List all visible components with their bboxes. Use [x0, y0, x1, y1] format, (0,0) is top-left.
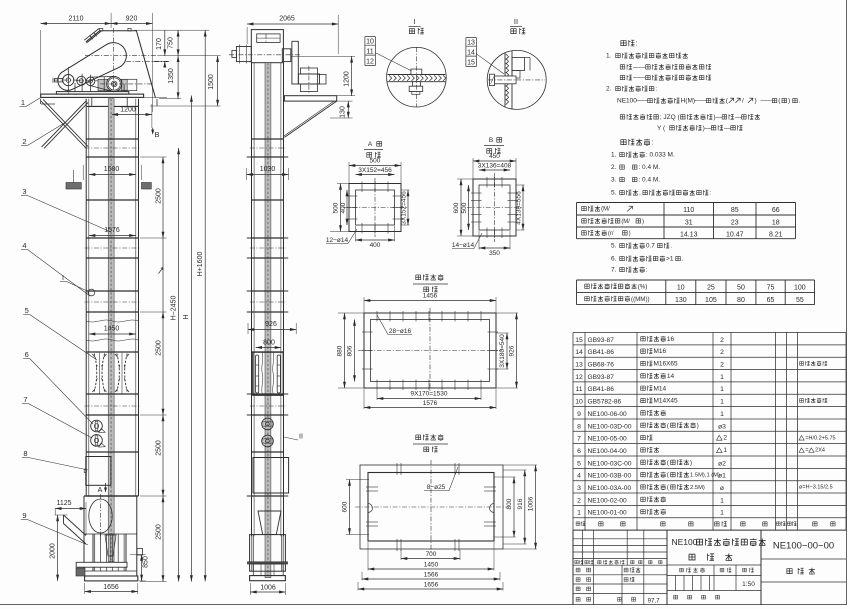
svg-text:(r/: (r/	[608, 231, 614, 237]
svg-text:ø=H−3.15/2.5: ø=H−3.15/2.5	[799, 485, 833, 491]
svg-text:130: 130	[675, 297, 687, 304]
svg-text:7.: 7.	[611, 267, 617, 274]
svg-text:28−ø16: 28−ø16	[389, 328, 412, 335]
svg-text:NE100-03D-00: NE100-03D-00	[588, 423, 632, 430]
svg-text:800: 800	[263, 340, 275, 347]
svg-text:GB68-76: GB68-76	[588, 362, 615, 369]
svg-text:7: 7	[577, 436, 581, 443]
svg-text:65: 65	[767, 297, 775, 304]
svg-text:2500: 2500	[155, 524, 162, 540]
svg-text:): )	[788, 98, 790, 105]
svg-text:75: 75	[767, 285, 775, 292]
svg-text:>1: >1	[666, 256, 674, 263]
svg-text:10: 10	[575, 399, 583, 406]
svg-text:2: 2	[577, 497, 581, 504]
svg-text:H−2450: H−2450	[170, 296, 177, 321]
svg-text:—: —	[735, 114, 742, 121]
svg-text:2: 2	[720, 349, 724, 356]
svg-text:1:50: 1:50	[742, 581, 755, 588]
svg-text:NE100-03B-00: NE100-03B-00	[588, 473, 632, 480]
svg-text:14: 14	[667, 373, 675, 380]
svg-text:750: 750	[168, 37, 175, 49]
svg-text:ø3: ø3	[718, 423, 726, 430]
svg-text:920: 920	[126, 16, 138, 23]
svg-text:(: (	[726, 98, 729, 105]
svg-text:1566: 1566	[424, 571, 439, 578]
svg-text:: 0.033 M.: : 0.033 M.	[646, 152, 675, 159]
svg-text:9: 9	[22, 511, 26, 520]
svg-text:23: 23	[731, 219, 739, 226]
svg-text:): )	[690, 460, 692, 466]
svg-text:50: 50	[737, 285, 745, 292]
svg-text:1656: 1656	[424, 581, 439, 588]
svg-text:3X180=540: 3X180=540	[499, 334, 506, 368]
svg-text:NE100: NE100	[617, 98, 637, 105]
svg-text:3: 3	[22, 187, 26, 196]
svg-text:2X4: 2X4	[815, 448, 825, 454]
svg-text:): )	[629, 231, 631, 237]
svg-text:2: 2	[723, 435, 727, 442]
svg-text:110: 110	[683, 207, 694, 214]
svg-text:7: 7	[23, 395, 27, 404]
svg-text:NE100−00−00: NE100−00−00	[773, 541, 834, 552]
svg-text:1006: 1006	[260, 585, 276, 592]
svg-text:4: 4	[22, 241, 26, 250]
svg-text:1200: 1200	[344, 71, 351, 87]
svg-text:A: A	[98, 487, 103, 494]
svg-text:500: 500	[461, 202, 468, 213]
svg-text:500: 500	[370, 158, 381, 165]
svg-text:; JZQ (: ; JZQ (	[660, 114, 681, 121]
svg-text:1: 1	[723, 447, 727, 454]
svg-text:11: 11	[575, 386, 582, 393]
svg-text:A: A	[368, 141, 373, 148]
svg-text:GB41-86: GB41-86	[588, 386, 615, 393]
svg-text:——: ——	[633, 76, 645, 82]
svg-text:1576: 1576	[423, 400, 438, 407]
svg-text:M16: M16	[653, 348, 666, 355]
svg-text:2.5M): 2.5M)	[690, 485, 705, 491]
svg-text:1: 1	[720, 374, 724, 381]
svg-text:130: 130	[340, 106, 347, 118]
svg-text:2: 2	[720, 337, 724, 344]
svg-text:5: 5	[577, 460, 581, 467]
svg-text:I: I	[62, 275, 64, 282]
svg-text:(: (	[667, 485, 669, 491]
svg-text:): )	[755, 98, 757, 105]
svg-text:1: 1	[21, 98, 25, 107]
svg-text:1125: 1125	[56, 500, 71, 507]
svg-text:——: ——	[633, 65, 645, 71]
svg-text:1576: 1576	[104, 227, 120, 234]
svg-text:100: 100	[794, 285, 806, 292]
svg-text:5.: 5.	[611, 243, 617, 250]
svg-text:18: 18	[772, 219, 780, 226]
svg-text:600: 600	[342, 501, 349, 512]
svg-text:85: 85	[731, 207, 739, 214]
svg-text:(: (	[667, 473, 669, 479]
svg-text:6.: 6.	[611, 256, 617, 263]
svg-text:B: B	[489, 137, 493, 144]
svg-text:=H/0.2+5.75: =H/0.2+5.75	[805, 435, 835, 441]
svg-text:2000: 2000	[49, 543, 56, 559]
svg-text:1: 1	[720, 386, 724, 393]
svg-text:——: ——	[695, 99, 707, 105]
svg-text:——: ——	[636, 99, 648, 105]
svg-text:1500: 1500	[208, 74, 215, 90]
svg-text:8.21: 8.21	[769, 231, 783, 238]
svg-text:I: I	[413, 17, 415, 26]
svg-text:H: H	[183, 314, 190, 319]
svg-text:/: /	[742, 98, 744, 105]
svg-text:13: 13	[467, 40, 475, 47]
svg-text:M14X45: M14X45	[653, 398, 678, 405]
svg-text:ø1: ø1	[718, 473, 726, 480]
svg-text:3: 3	[577, 485, 581, 492]
svg-text:10: 10	[677, 285, 685, 292]
svg-text::: :	[636, 41, 638, 48]
svg-text:NE100-03A-00: NE100-03A-00	[588, 485, 632, 492]
svg-text:((MM)): ((MM))	[631, 296, 650, 303]
svg-text:1030: 1030	[260, 166, 276, 173]
svg-text::: :	[651, 140, 653, 147]
svg-text:800: 800	[506, 498, 513, 509]
svg-text:GB41-86: GB41-86	[588, 349, 615, 356]
svg-text:1.5M),1 (M): 1.5M),1 (M)	[690, 473, 720, 479]
svg-text:8: 8	[23, 449, 27, 458]
svg-text:6: 6	[25, 350, 29, 359]
svg-text:—: —	[724, 125, 731, 132]
svg-text:3X152=456: 3X152=456	[358, 167, 392, 174]
svg-text:5: 5	[25, 306, 29, 315]
svg-text:GB93-87: GB93-87	[588, 337, 615, 344]
svg-text:,: ,	[639, 191, 641, 197]
svg-text:450: 450	[489, 153, 500, 160]
svg-text:880: 880	[337, 345, 344, 356]
svg-text:600: 600	[453, 202, 460, 213]
svg-text:Y (: Y (	[657, 125, 666, 132]
svg-text:400: 400	[340, 202, 347, 213]
svg-text:1: 1	[577, 510, 581, 517]
svg-text:10: 10	[366, 39, 374, 46]
svg-text:13: 13	[575, 362, 583, 369]
svg-text:806: 806	[347, 345, 354, 356]
svg-text:)—: )—	[713, 114, 722, 121]
svg-text:15: 15	[467, 59, 475, 66]
svg-text:NE100-01-00: NE100-01-00	[588, 510, 628, 517]
svg-text:14.13: 14.13	[680, 231, 698, 238]
svg-text:NE100-05-00: NE100-05-00	[588, 436, 628, 443]
svg-text:II: II	[514, 17, 518, 26]
svg-text:15: 15	[575, 337, 583, 344]
svg-text:3X152=456: 3X152=456	[400, 191, 407, 225]
svg-text:(: (	[667, 423, 669, 429]
svg-text:1006: 1006	[528, 496, 535, 511]
svg-text:9: 9	[577, 411, 581, 418]
svg-text:10.47: 10.47	[726, 231, 744, 238]
svg-text:2110: 2110	[68, 16, 83, 23]
svg-text:(M/: (M/	[621, 219, 630, 225]
svg-text::: :	[655, 87, 657, 93]
svg-text:1450: 1450	[104, 326, 120, 333]
svg-text:GB5782-86: GB5782-86	[588, 399, 622, 406]
svg-text:14−ø14: 14−ø14	[452, 242, 475, 249]
svg-text:1: 1	[720, 510, 724, 517]
svg-text:1200: 1200	[120, 107, 136, 114]
svg-text:1: 1	[720, 399, 724, 406]
svg-text:350: 350	[489, 250, 500, 257]
svg-text:II: II	[299, 434, 303, 441]
svg-text:9X170=1530: 9X170=1530	[410, 391, 447, 398]
svg-text:2500: 2500	[155, 188, 162, 204]
svg-text:: 0.4 M.: : 0.4 M.	[638, 177, 660, 184]
svg-text:3X136=408: 3X136=408	[478, 163, 512, 170]
svg-text:1450: 1450	[424, 561, 439, 568]
svg-text:1: 1	[720, 497, 724, 504]
svg-text:2: 2	[22, 137, 26, 146]
svg-text:.: .	[670, 244, 672, 250]
svg-text:14: 14	[575, 349, 583, 356]
svg-text:NE100-04-00: NE100-04-00	[588, 448, 628, 455]
svg-text:926: 926	[509, 345, 516, 356]
svg-text:1.: 1.	[611, 152, 617, 159]
svg-text:400: 400	[370, 242, 381, 249]
svg-text:): )	[697, 423, 699, 429]
svg-text:1350: 1350	[168, 68, 175, 84]
svg-text:14: 14	[467, 49, 475, 56]
svg-text:(: (	[667, 460, 669, 466]
svg-text:2: 2	[720, 362, 724, 369]
svg-text:H+1600: H+1600	[197, 252, 204, 277]
svg-text:.: .	[682, 257, 684, 263]
svg-text::: :	[709, 191, 711, 197]
svg-text:3.: 3.	[611, 177, 617, 184]
svg-text:55: 55	[796, 297, 804, 304]
svg-text:GB93-87: GB93-87	[588, 374, 615, 381]
svg-text:M14: M14	[653, 385, 666, 392]
svg-text:12: 12	[366, 58, 374, 65]
svg-text:4: 4	[577, 473, 581, 480]
svg-text:0.7: 0.7	[646, 243, 655, 250]
svg-text:ø: ø	[720, 485, 724, 492]
svg-text:700: 700	[426, 551, 437, 558]
svg-text:NE100-03C-00: NE100-03C-00	[588, 460, 632, 467]
svg-text:——: ——	[761, 99, 773, 105]
svg-text:12: 12	[575, 374, 583, 381]
svg-text:4X139=556: 4X139=556	[515, 191, 522, 225]
svg-text:1.: 1.	[606, 53, 612, 60]
svg-text:500: 500	[333, 202, 340, 213]
svg-text:105: 105	[705, 297, 717, 304]
svg-text:(M/: (M/	[601, 207, 610, 213]
svg-text:): )	[642, 219, 644, 225]
svg-text:2.: 2.	[611, 164, 617, 171]
svg-text:850: 850	[143, 556, 150, 568]
svg-text:6: 6	[577, 448, 581, 455]
svg-text:2065: 2065	[279, 16, 295, 23]
svg-text:926: 926	[265, 321, 277, 328]
svg-text:66: 66	[772, 207, 780, 214]
svg-text:8: 8	[577, 423, 581, 430]
svg-text:NE100-02-00: NE100-02-00	[588, 497, 628, 504]
svg-text:1456: 1456	[423, 293, 438, 300]
svg-text:.: .	[799, 99, 801, 105]
svg-text:ø2: ø2	[718, 460, 726, 467]
svg-text:97.7: 97.7	[648, 597, 661, 604]
svg-text:B: B	[154, 130, 159, 139]
svg-text:2500: 2500	[155, 340, 162, 356]
svg-text:(%): (%)	[638, 283, 648, 290]
svg-text:M16X65: M16X65	[653, 361, 678, 368]
svg-text:8−ø25: 8−ø25	[427, 484, 446, 491]
svg-text:: 0.4 M.: : 0.4 M.	[638, 164, 660, 171]
svg-text:80: 80	[737, 297, 745, 304]
svg-text:12−ø14: 12−ø14	[326, 237, 349, 244]
svg-text:NE100-06-00: NE100-06-00	[588, 411, 628, 418]
svg-text:1: 1	[720, 411, 724, 418]
svg-text:=: =	[805, 448, 808, 454]
svg-text:31: 31	[685, 219, 693, 226]
svg-text:170: 170	[156, 38, 163, 50]
svg-text:11: 11	[366, 48, 373, 55]
svg-text::: :	[646, 268, 648, 274]
svg-text:5.: 5.	[611, 190, 617, 197]
svg-text:H(M): H(M)	[681, 98, 695, 105]
svg-text:25: 25	[707, 285, 715, 292]
svg-text:(: (	[778, 98, 781, 105]
svg-text:916: 916	[517, 498, 524, 509]
svg-text:2.: 2.	[606, 86, 612, 93]
svg-text:1680: 1680	[104, 166, 120, 173]
svg-text:2500: 2500	[155, 440, 162, 456]
svg-text:)—: )—	[703, 125, 712, 132]
svg-text:1656: 1656	[103, 584, 119, 591]
svg-text:16: 16	[667, 336, 675, 343]
svg-text:NE100: NE100	[672, 537, 698, 547]
